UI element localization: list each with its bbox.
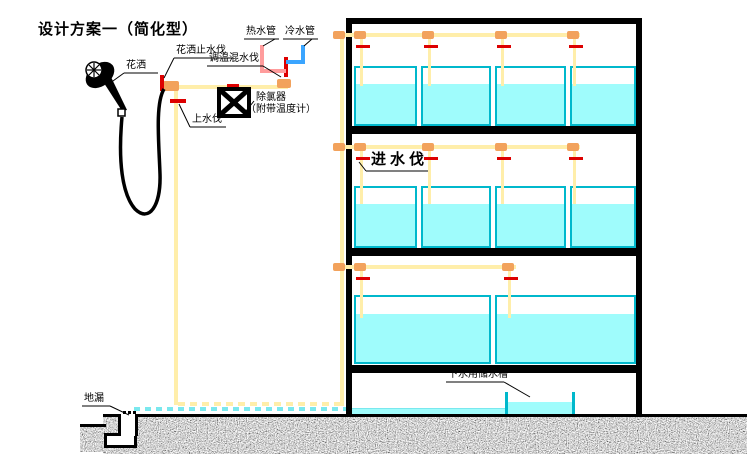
tee-fitting — [333, 31, 345, 39]
pipe-drop — [360, 36, 363, 86]
diagram-canvas: 设计方案一（简化型） — [0, 0, 750, 463]
tank-water — [423, 204, 489, 246]
tank — [495, 186, 566, 248]
tee-fitting — [354, 31, 366, 39]
pipe-shelf1 — [342, 33, 580, 37]
leader-supply-valve — [179, 104, 190, 127]
inlet-valve-mark — [497, 45, 511, 48]
pipe-riser — [340, 33, 344, 406]
rack-shelf-divider-1 — [346, 126, 642, 134]
tank-water — [572, 84, 634, 124]
label-shower-head: 花洒 — [126, 60, 146, 72]
tank — [421, 66, 491, 126]
tank-water — [497, 314, 634, 362]
tank — [354, 66, 417, 126]
drain-storage-tank — [505, 392, 575, 414]
page-title: 设计方案一（简化型） — [38, 18, 198, 39]
label-mixing-valve: 调温混水伐 — [209, 53, 259, 65]
pipe-drop — [508, 268, 511, 318]
storage-tank-water — [508, 402, 572, 414]
elbow-fitting — [502, 263, 514, 271]
tee-fitting — [495, 143, 507, 151]
tank-water — [572, 204, 634, 246]
shower-hose — [121, 89, 164, 214]
leader-hot-pipe — [263, 39, 275, 46]
pipe-drop — [360, 268, 363, 318]
pipe-floor-run — [178, 402, 344, 406]
elbow-fitting — [567, 31, 579, 39]
ground-texture-left — [80, 427, 106, 452]
inlet-valve-mark — [356, 157, 370, 160]
inlet-valve-mark — [497, 157, 511, 160]
label-storage-tank: 下水用储水槽 — [448, 369, 508, 381]
label-dechlorinator: 除氯器 — [256, 92, 286, 104]
tank-water — [423, 84, 489, 124]
floor-drain-channel — [118, 414, 138, 436]
label-dechlorinator-note: （附带温度计） — [246, 104, 316, 116]
tank-water — [356, 314, 489, 362]
rack-shelf-divider-2 — [346, 248, 642, 256]
pipe-drop — [501, 36, 504, 86]
pipe-shelf3 — [342, 265, 516, 269]
tank-water — [356, 84, 415, 124]
rack-right-wall — [636, 18, 642, 415]
mixer-elbow-fitting — [277, 79, 291, 88]
tee-fitting — [495, 31, 507, 39]
label-supply-valve: 上水伐 — [192, 114, 222, 126]
inlet-valve-mark — [424, 45, 438, 48]
pipe-shelf2 — [342, 145, 580, 149]
tank-water — [356, 204, 415, 246]
drain-grate-dot — [128, 411, 131, 414]
rack-top-bar — [346, 18, 642, 24]
label-cold-water-pipe: 冷水管 — [285, 26, 315, 38]
tank-water — [497, 84, 564, 124]
elbow-fitting — [567, 143, 579, 151]
tank — [421, 186, 491, 248]
label-floor-drain: 地漏 — [84, 393, 104, 405]
pipe-drop — [428, 36, 431, 86]
tee-fitting — [422, 31, 434, 39]
drain-grate-dot — [123, 411, 126, 414]
hot-water-pipe-elbow — [260, 69, 286, 73]
rack-left-wall — [346, 18, 352, 415]
hot-water-pipe — [260, 45, 264, 71]
inlet-valve-mark — [356, 277, 370, 280]
tank — [570, 66, 636, 126]
floor-drain-water-flow — [134, 407, 346, 411]
tank — [570, 186, 636, 248]
hose-connector — [118, 109, 125, 116]
tank — [495, 66, 566, 126]
shower-head-assembly — [78, 56, 178, 226]
tank — [354, 295, 491, 364]
leader-cold-pipe — [304, 39, 312, 46]
label-inlet-valve: 进水伐 — [371, 150, 428, 168]
tee-fitting — [333, 263, 345, 271]
tank — [354, 186, 417, 248]
inlet-valve-mark — [504, 277, 518, 280]
drain-grate-dot — [133, 411, 136, 414]
tee-fitting — [354, 263, 366, 271]
ground-texture — [103, 417, 747, 454]
label-hot-water-pipe: 热水管 — [246, 26, 276, 38]
inlet-valve-mark — [569, 45, 583, 48]
tee-fitting — [333, 143, 345, 151]
tank-water — [497, 204, 564, 246]
cold-water-pipe-elbow — [286, 60, 305, 64]
inlet-valve-mark — [569, 157, 583, 160]
tank — [495, 295, 636, 364]
inlet-valve-mark — [356, 45, 370, 48]
pipe-drop — [573, 36, 576, 86]
tee-fitting — [354, 143, 366, 151]
